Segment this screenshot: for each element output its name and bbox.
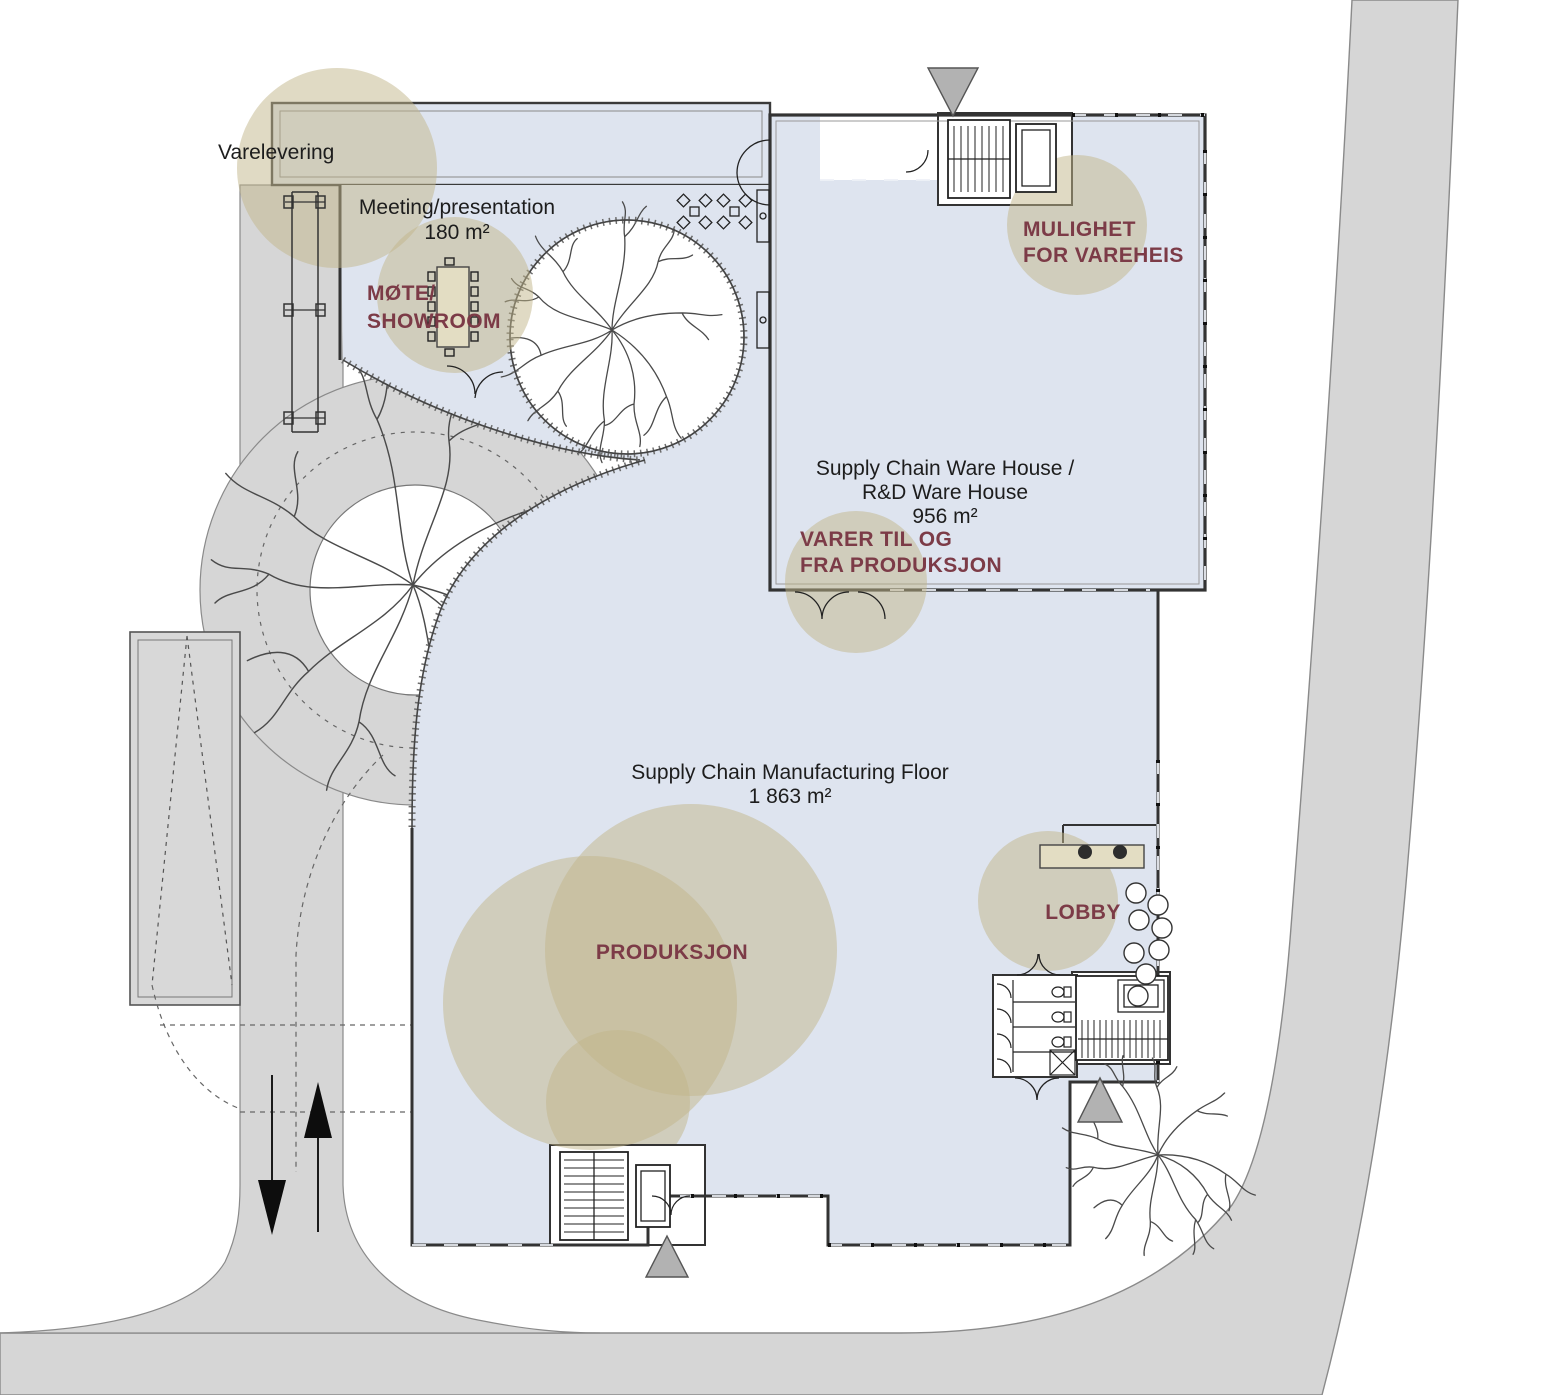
stair-core-lobby <box>1076 976 1168 1060</box>
label-meeting-area: 180 m² <box>307 221 607 245</box>
loading-bay <box>130 632 240 1005</box>
label-warehouse-1: Supply Chain Ware House / <box>795 457 1095 481</box>
stair-core-south <box>560 1152 690 1240</box>
label-vareheis-2: FOR VAREHEIS <box>1023 243 1184 268</box>
label-produksjon: PRODUKSJON <box>547 940 797 965</box>
label-manufacturing-name: Supply Chain Manufacturing Floor <box>615 761 965 785</box>
label-mote-2: SHOWROOM <box>367 309 501 334</box>
label-meeting-name: Meeting/presentation <box>307 196 607 220</box>
label-varer-1: VARER TIL OG <box>800 527 952 552</box>
plan-drawing <box>0 0 1560 1395</box>
label-varer-2: FRA PRODUKSJON <box>800 553 1002 578</box>
conference-table <box>428 258 478 356</box>
entrance-triangle-north <box>928 68 978 116</box>
label-mote-1: MØTE/ <box>367 281 436 306</box>
site-plan: Varelevering Meeting/presentation 180 m²… <box>0 0 1560 1395</box>
stool <box>1113 845 1127 859</box>
entrance-triangle-lobby <box>1078 1078 1122 1122</box>
label-vareheis-1: MULIGHET <box>1023 217 1136 242</box>
label-varelevering: Varelevering <box>218 141 334 165</box>
reception-desk <box>1040 845 1144 868</box>
label-lobby: LOBBY <box>1023 900 1143 925</box>
label-warehouse-area: 956 m² <box>795 505 1095 529</box>
label-manufacturing-area: 1 863 m² <box>615 785 965 809</box>
label-warehouse-2: R&D Ware House <box>795 481 1095 505</box>
stool <box>1078 845 1092 859</box>
